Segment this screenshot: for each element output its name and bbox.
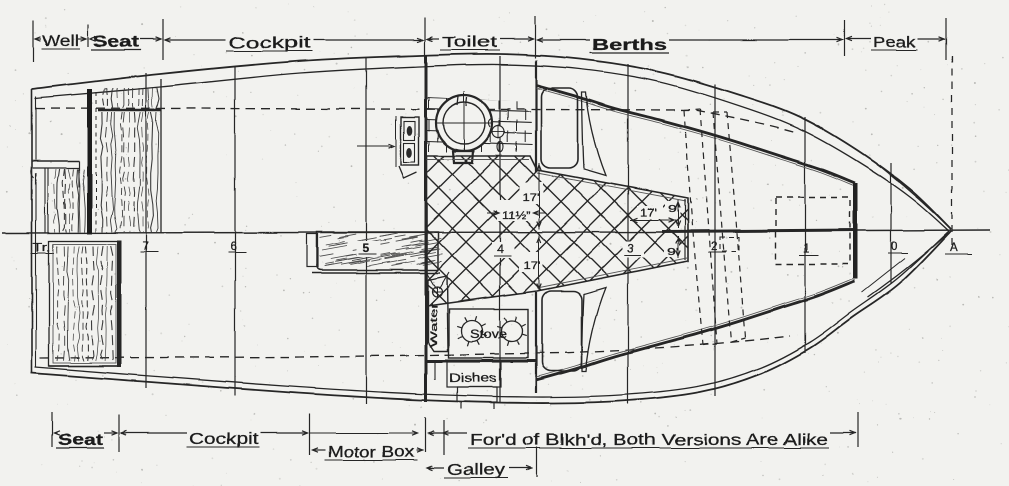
svg-text:11½”: 11½” [502, 210, 530, 222]
svg-text:Cockpit: Cockpit [228, 35, 311, 52]
svg-text:2: 2 [711, 241, 717, 253]
svg-text:Seat: Seat [93, 34, 139, 51]
svg-text:Dishes: Dishes [449, 373, 497, 385]
svg-text:6: 6 [230, 241, 236, 253]
svg-text:17': 17' [524, 260, 541, 272]
svg-text:Cockpit: Cockpit [189, 431, 259, 448]
svg-text:9': 9' [668, 203, 680, 215]
svg-text:0: 0 [891, 241, 897, 253]
svg-text:Peak: Peak [873, 34, 917, 51]
svg-text:7: 7 [142, 241, 148, 253]
svg-text:3: 3 [627, 243, 633, 255]
svg-text:Well: Well [42, 33, 79, 50]
svg-text:Berths: Berths [592, 37, 667, 54]
svg-text:4: 4 [497, 244, 504, 256]
svg-text:Water: Water [428, 302, 440, 347]
svg-text:17': 17' [522, 192, 539, 204]
svg-text:Tr.: Tr. [33, 242, 51, 254]
svg-text:For'd of Blkh'd, Both Versions: For'd of Blkh'd, Both Versions Are Alike [470, 432, 828, 449]
svg-text:Toilet: Toilet [442, 34, 498, 51]
svg-text:Motor Box: Motor Box [328, 444, 414, 461]
svg-text:Stove: Stove [470, 329, 507, 341]
svg-text:5: 5 [362, 241, 369, 255]
svg-text:1: 1 [803, 243, 809, 255]
svg-text:9': 9' [667, 246, 679, 258]
svg-text:Galley: Galley [447, 462, 505, 479]
svg-text:A: A [950, 242, 958, 254]
svg-text:Seat: Seat [58, 432, 103, 449]
svg-text:17': 17' [640, 207, 657, 219]
